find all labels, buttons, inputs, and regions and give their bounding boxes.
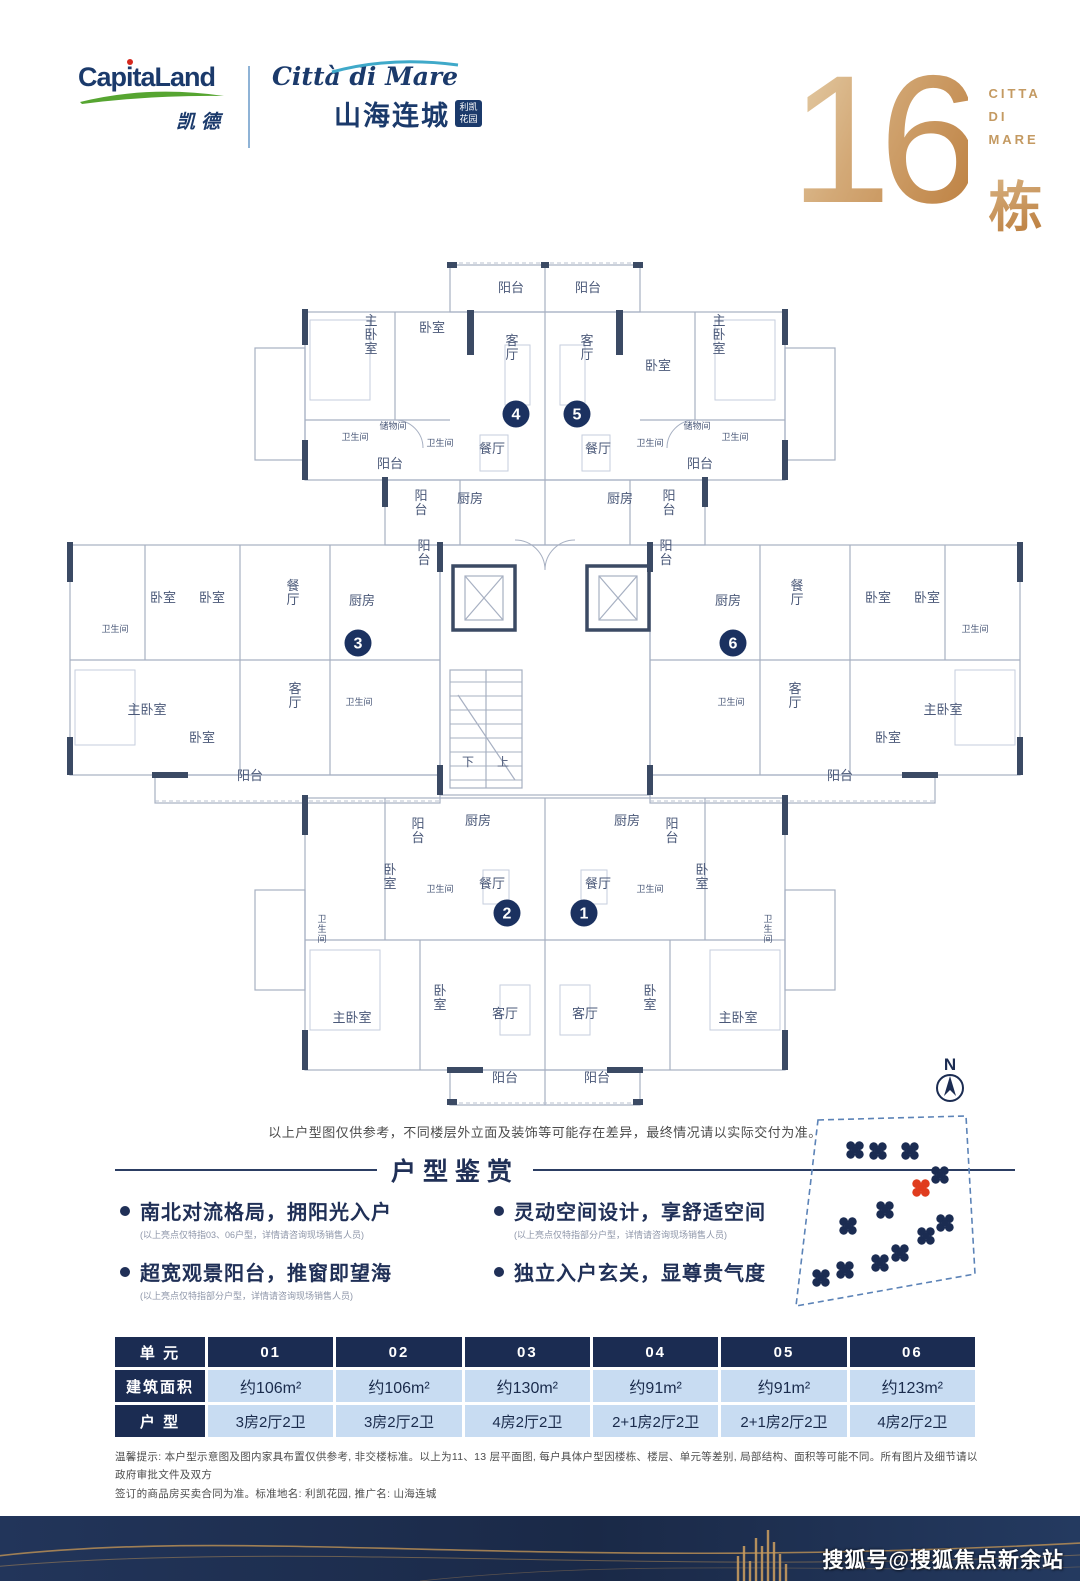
room-label: 厨房	[457, 491, 483, 506]
citta-caption: CITTADIMARE	[988, 82, 1042, 151]
room-label: 卫生间	[961, 623, 988, 634]
building-footprint-highlighted	[912, 1179, 929, 1196]
building-footprint	[846, 1141, 863, 1158]
highlight-title: 独立入户玄关，显尊贵气度	[514, 1257, 766, 1286]
room-label: 阳台	[417, 538, 430, 567]
room-label: 餐厅	[585, 441, 611, 456]
citta-di-mare-logo: Città di Mare 山海连城 利凯 花园	[272, 62, 482, 133]
table-header-cell: 06	[850, 1337, 975, 1367]
room-label: 阳台	[665, 816, 678, 845]
unit-number: 1	[580, 906, 589, 923]
room-label: 卫生间	[426, 883, 453, 894]
room-label: 阳台	[575, 280, 601, 295]
compass-n-label: N	[944, 1055, 956, 1074]
highlight-note: (以上亮点仅特指部分户型，详情请咨询现场销售人员)	[140, 1289, 446, 1302]
citta-caption-line: CITTA	[988, 82, 1042, 105]
building-footprint	[901, 1142, 918, 1159]
badge-line2: 花园	[459, 114, 477, 125]
footnote: 温馨提示: 本户型示意图及图内家具布置仅供参考, 非交楼标准。以上为11、13 …	[115, 1448, 985, 1503]
room-label: 厨房	[465, 813, 491, 828]
building-number-block: 16 CITTADIMARE 栋	[790, 56, 1042, 242]
room-label: 主卧室	[923, 702, 962, 717]
table-cell: 2+1房2厅2卫	[721, 1405, 846, 1437]
section-title: 户型鉴赏	[391, 1152, 519, 1188]
bullet-dot-icon	[120, 1267, 130, 1277]
table-cell: 约91m²	[593, 1370, 718, 1402]
highlight-bullets: 南北对流格局，拥阳光入户(以上亮点仅特指03、06户型，详情请咨询现场销售人员)…	[120, 1196, 820, 1302]
room-label: 主卧室	[712, 313, 725, 356]
room-label: 卫生间	[636, 437, 663, 448]
room-label: 储物间	[379, 420, 406, 431]
highlight-title: 南北对流格局，拥阳光入户	[140, 1196, 392, 1225]
unit-number: 5	[573, 407, 582, 424]
site-map: N	[778, 1038, 998, 1328]
table-cell: 约106m²	[336, 1370, 461, 1402]
room-label: 卧室	[189, 730, 215, 745]
bullet-column: 南北对流格局，拥阳光入户(以上亮点仅特指03、06户型，详情请咨询现场销售人员)…	[120, 1196, 446, 1302]
bullet-dot-icon	[120, 1206, 130, 1216]
table-cell: 约91m²	[721, 1370, 846, 1402]
table-row-label: 户 型	[115, 1405, 205, 1437]
table-header-cell: 02	[336, 1337, 461, 1367]
table-cell: 3房2厅2卫	[208, 1405, 333, 1437]
room-label: 主卧室	[127, 702, 166, 717]
room-label: 卧室	[914, 590, 940, 605]
table-cell: 约130m²	[465, 1370, 590, 1402]
building-number: 16	[790, 56, 968, 242]
room-label: 阳台	[584, 1070, 610, 1085]
building-dong: 栋	[988, 163, 1042, 242]
table-cell: 3房2厅2卫	[336, 1405, 461, 1437]
table-header-cell: 05	[721, 1337, 846, 1367]
room-label: 客厅	[572, 1006, 598, 1021]
highlight-item: 独立入户玄关，显尊贵气度	[494, 1257, 820, 1286]
building-footprint	[936, 1214, 953, 1231]
table-header-cell: 03	[465, 1337, 590, 1367]
room-label: 餐厅	[479, 441, 505, 456]
room-label: 客厅	[788, 681, 801, 710]
room-label: 客厅	[505, 333, 518, 362]
building-footprint	[839, 1217, 856, 1234]
page: CapitaLand 凯德 Città di Mare 山海连城 利凯 花园 1…	[0, 0, 1080, 1581]
room-label: 餐厅	[790, 578, 803, 607]
room-label: 阳台	[237, 768, 263, 783]
building-footprint	[876, 1201, 893, 1218]
capitaland-logo: CapitaLand 凯德	[78, 62, 226, 134]
building-footprint	[871, 1254, 888, 1271]
room-label: 卧室	[383, 862, 396, 891]
building-footprint	[836, 1261, 853, 1278]
room-label: 主卧室	[332, 1010, 371, 1025]
table-header-cell: 04	[593, 1337, 718, 1367]
room-label: 阳台	[687, 456, 713, 471]
room-label: 阳台	[498, 280, 524, 295]
table-cell: 4房2厅2卫	[465, 1405, 590, 1437]
stair-up-label: 上	[497, 755, 509, 769]
highlight-note: (以上亮点仅特指03、06户型，详情请咨询现场销售人员)	[140, 1228, 446, 1241]
citta-swoosh-icon	[330, 60, 460, 74]
table-header-unit: 单 元	[115, 1337, 205, 1367]
table-cell: 2+1房2厅2卫	[593, 1405, 718, 1437]
room-label: 客厅	[580, 333, 593, 362]
room-label: 卫生间	[101, 623, 128, 634]
room-label: 卧室	[199, 590, 225, 605]
room-label: 卫生间	[721, 431, 748, 442]
highlight-item: 灵动空间设计，享舒适空间(以上亮点仅特指部分户型，详情请咨询现场销售人员)	[494, 1196, 820, 1241]
highlight-item: 南北对流格局，拥阳光入户(以上亮点仅特指03、06户型，详情请咨询现场销售人员)	[120, 1196, 446, 1241]
building-footprint	[891, 1244, 908, 1261]
logo-divider	[248, 66, 250, 148]
floor-plan: 阳台阳台客厅客厅主卧室卧室卧室主卧室卫生间储物间卫生间餐厅餐厅卫生间储物间卫生间…	[55, 250, 1025, 1108]
room-label: 卫生间	[636, 883, 663, 894]
room-label: 储物间	[683, 420, 710, 431]
room-label: 卫生间	[341, 431, 368, 442]
citta-caption-line: MARE	[988, 128, 1042, 151]
room-label: 阳台	[659, 538, 672, 567]
table-cell: 约123m²	[850, 1370, 975, 1402]
bullet-column: 灵动空间设计，享舒适空间(以上亮点仅特指部分户型，详情请咨询现场销售人员)独立入…	[494, 1196, 820, 1302]
room-label: 主卧室	[718, 1010, 757, 1025]
room-label: 卧室	[419, 320, 445, 335]
unit-number: 3	[354, 636, 363, 653]
room-label: 阳台	[662, 488, 675, 517]
room-label: 客厅	[288, 681, 301, 710]
room-label: 阳台	[492, 1070, 518, 1085]
bullet-dot-icon	[494, 1206, 504, 1216]
building-footprint	[869, 1142, 886, 1159]
room-label: 卫生间	[763, 914, 772, 944]
room-label: 客厅	[492, 1006, 518, 1021]
room-label: 卧室	[433, 983, 446, 1012]
capitaland-chinese: 凯德	[78, 107, 226, 134]
room-label: 阳台	[377, 456, 403, 471]
bullet-dot-icon	[494, 1267, 504, 1277]
room-label: 卧室	[865, 590, 891, 605]
room-label: 卧室	[645, 358, 671, 373]
building-footprint	[812, 1269, 829, 1286]
room-label: 厨房	[614, 813, 640, 828]
room-label: 厨房	[607, 491, 633, 506]
title-rule-left	[115, 1169, 377, 1171]
room-label: 卧室	[875, 730, 901, 745]
room-label: 餐厅	[479, 876, 505, 891]
highlight-item: 超宽观景阳台，推窗即望海(以上亮点仅特指部分户型，详情请咨询现场销售人员)	[120, 1257, 446, 1302]
room-label: 阳台	[827, 768, 853, 783]
room-label: 卫生间	[345, 696, 372, 707]
citta-caption-line: DI	[988, 105, 1042, 128]
unit-number: 6	[729, 636, 738, 653]
citta-chinese: 山海连城	[334, 94, 450, 133]
room-label: 餐厅	[286, 578, 299, 607]
highlight-title: 超宽观景阳台，推窗即望海	[140, 1257, 392, 1286]
room-label: 卫生间	[317, 914, 326, 944]
room-label: 卧室	[695, 862, 708, 891]
room-label: 餐厅	[585, 876, 611, 891]
badge-line1: 利凯	[459, 102, 477, 113]
room-label: 卫生间	[717, 696, 744, 707]
table-row-label: 建筑面积	[115, 1370, 205, 1402]
room-label: 阳台	[414, 488, 427, 517]
table-cell: 约106m²	[208, 1370, 333, 1402]
room-label: 厨房	[349, 593, 375, 608]
header-logos: CapitaLand 凯德 Città di Mare 山海连城 利凯 花园	[78, 62, 482, 148]
room-label: 阳台	[411, 816, 424, 845]
likai-garden-badge: 利凯 花园	[455, 100, 482, 127]
footer-band: 搜狐号@搜狐焦点新余站	[0, 1516, 1080, 1581]
table-header-cell: 01	[208, 1337, 333, 1367]
room-label: 主卧室	[364, 313, 377, 356]
table-cell: 4房2厅2卫	[850, 1405, 975, 1437]
room-label: 厨房	[715, 593, 741, 608]
watermark: 搜狐号@搜狐焦点新余站	[823, 1544, 1064, 1574]
room-label: 卫生间	[426, 437, 453, 448]
unit-number: 4	[512, 407, 521, 424]
stair-down-label: 下	[462, 755, 474, 769]
footnote-line2: 签订的商品房买卖合同为准。标准地名: 利凯花园, 推广名: 山海连城	[115, 1488, 437, 1500]
room-label: 卧室	[150, 590, 176, 605]
highlight-title: 灵动空间设计，享舒适空间	[514, 1196, 766, 1225]
building-footprint	[931, 1166, 948, 1183]
capitaland-wordmark: CapitaLand	[78, 62, 226, 93]
highlight-note: (以上亮点仅特指部分户型，详情请咨询现场销售人员)	[514, 1228, 820, 1241]
capitaland-red-dot-icon	[127, 59, 133, 65]
room-label: 卧室	[643, 983, 656, 1012]
building-footprint	[917, 1227, 934, 1244]
footnote-line1: 温馨提示: 本户型示意图及图内家具布置仅供参考, 非交楼标准。以上为11、13 …	[115, 1451, 978, 1481]
unit-number: 2	[503, 906, 512, 923]
unit-spec-table: 单 元010203040506建筑面积约106m²约106m²约130m²约91…	[115, 1337, 975, 1437]
